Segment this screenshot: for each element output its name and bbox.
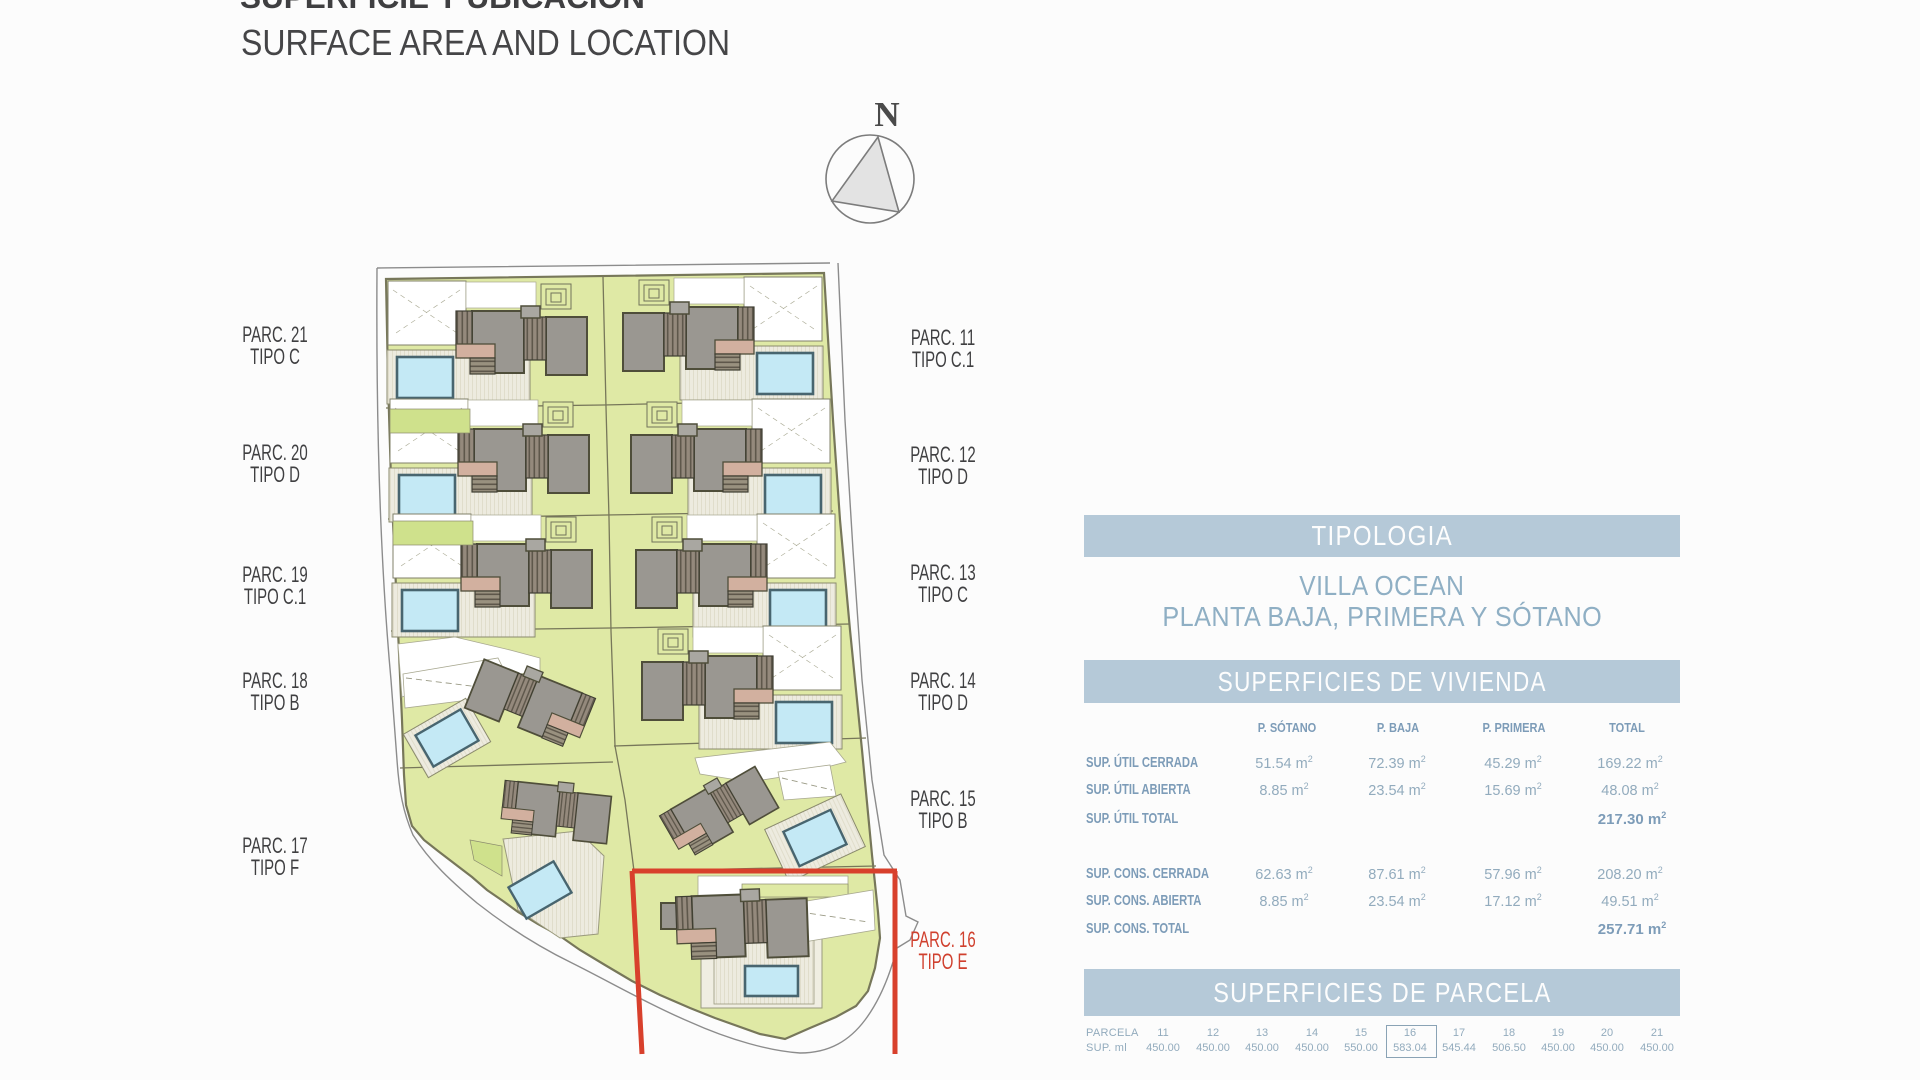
svg-text:N: N (874, 95, 899, 134)
